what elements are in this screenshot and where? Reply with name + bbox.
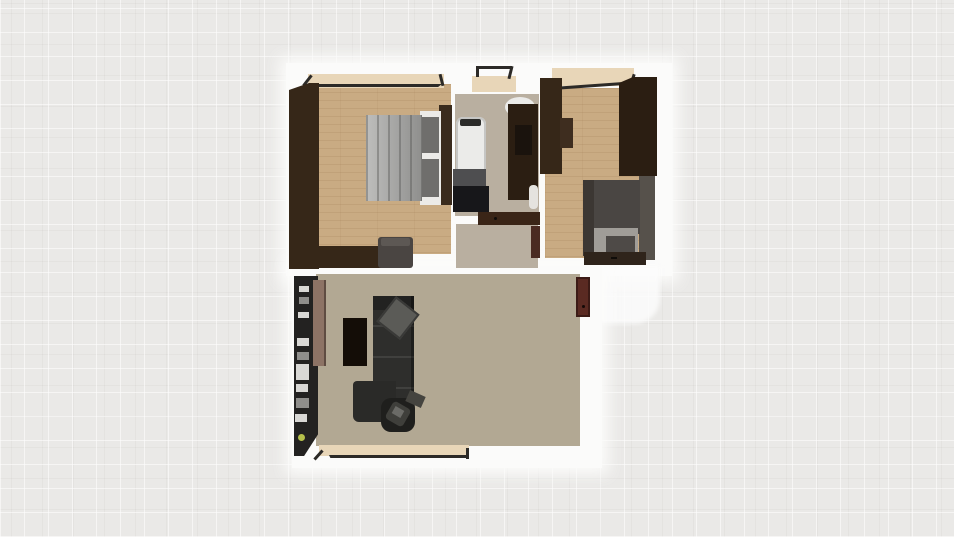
shelf-item[interactable]	[296, 364, 309, 380]
coffee-table[interactable]	[343, 318, 367, 366]
floor-plan-canvas	[0, 0, 954, 537]
shelf-item[interactable]	[296, 384, 308, 392]
double-bed-blanket[interactable]	[366, 115, 422, 201]
armchair-backrest	[381, 238, 410, 246]
cabinet-panel	[515, 125, 532, 155]
door-knob	[582, 305, 585, 308]
open-door-leaf[interactable]	[313, 280, 326, 366]
shelf-item[interactable]	[299, 286, 309, 292]
shelf-item[interactable]	[299, 297, 309, 304]
shelf-item[interactable]	[297, 352, 309, 360]
living-room-window-sill[interactable]	[319, 445, 469, 456]
wardrobe-bottom-wall[interactable]	[289, 246, 387, 268]
shelf-item[interactable]	[298, 312, 309, 318]
hallway-floor[interactable]	[456, 224, 538, 268]
right-bedroom-wall-shelf[interactable]	[540, 78, 562, 174]
shelf-item[interactable]	[296, 398, 309, 408]
entry-door[interactable]	[576, 277, 590, 317]
wardrobe-left-wall[interactable]	[289, 83, 319, 269]
bathroom-vanity-counter[interactable]	[453, 186, 489, 212]
single-bed-rail	[583, 180, 594, 256]
bed-side-rail	[639, 176, 655, 260]
bedroom-left-window-frame	[312, 84, 442, 87]
bathroom-window-frame	[476, 66, 512, 69]
hallway-door[interactable]	[478, 212, 540, 225]
hallway-wall-strip	[531, 226, 540, 258]
window-frame-tick	[466, 448, 469, 459]
living-room-window-frame	[329, 455, 469, 458]
potted-plant[interactable]	[298, 434, 305, 441]
shelf-ledge[interactable]	[560, 118, 573, 148]
wall-glow	[598, 266, 660, 324]
bathroom-vanity[interactable]	[453, 169, 486, 187]
bed-pillow[interactable]	[422, 117, 439, 153]
shelf-item[interactable]	[295, 414, 307, 422]
door-knob	[494, 217, 497, 220]
towel[interactable]	[529, 185, 538, 209]
bathtub-faucet	[460, 119, 481, 126]
drawer-handle	[611, 257, 617, 259]
window-frame-tick	[476, 66, 479, 77]
shelf-item[interactable]	[297, 338, 309, 346]
right-bedroom-wardrobe[interactable]	[619, 77, 657, 176]
bed-pillow[interactable]	[422, 159, 439, 197]
